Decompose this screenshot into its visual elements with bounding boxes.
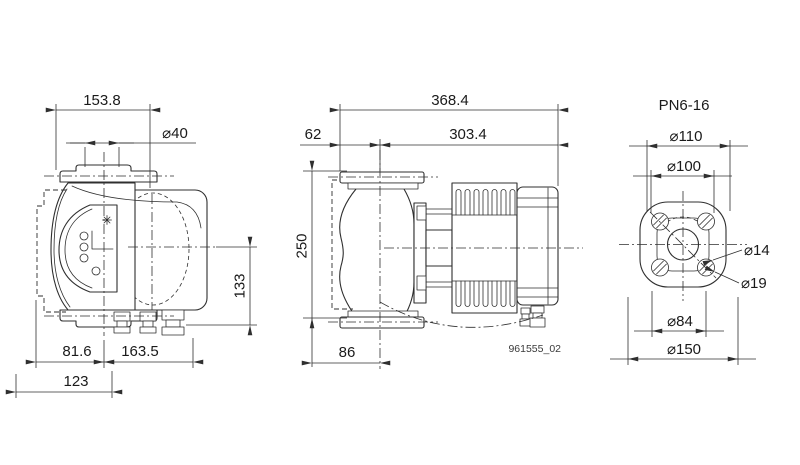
bottom-flange-lip	[348, 311, 418, 317]
dim-label: 368.4	[431, 92, 469, 109]
side-view: 368.4 62 303.4 250 86 961555_02	[294, 92, 584, 369]
dim-flange-width: 86	[312, 344, 380, 363]
dim-label: ⌀150	[667, 341, 701, 358]
dim-body-length: 303.4	[380, 126, 558, 171]
drawing-reference-number: 961555_02	[508, 343, 561, 355]
dim-label: 86	[339, 344, 356, 361]
top-flange-front	[60, 165, 157, 182]
dim-label: 303.4	[449, 126, 487, 143]
front-view: 153.8 ⌀40 133 81.6 163.5	[16, 92, 257, 398]
clamp-screw	[417, 276, 426, 290]
dim-label: 250	[294, 233, 311, 258]
cable-glands-side	[520, 306, 545, 327]
dim-label: ⌀40	[162, 125, 188, 142]
cable-glands-front	[114, 310, 184, 335]
dim-label: ⌀110	[670, 128, 703, 145]
volute-right-profile	[404, 189, 414, 317]
dim-port-diameter: ⌀40	[66, 125, 196, 143]
dim-label: 62	[305, 126, 322, 143]
top-flange-side	[340, 172, 424, 183]
bottom-flange-side	[340, 317, 424, 328]
dim-label: 163.5	[121, 343, 159, 360]
dim-counterbore: ⌀19	[715, 272, 767, 292]
dim-label: 81.6	[62, 343, 91, 360]
dim-label: ⌀19	[741, 275, 767, 292]
dim-label: 123	[63, 373, 88, 390]
pump-dimensional-drawing: 153.8 ⌀40 133 81.6 163.5	[0, 0, 800, 465]
pressure-rating-label: PN6-16	[659, 97, 710, 114]
control-box-side	[517, 187, 558, 305]
dim-bottom-overall: 123	[16, 371, 112, 398]
dim-label: ⌀84	[667, 313, 693, 330]
top-flange-lip	[348, 183, 418, 189]
dim-raised-face: ⌀84	[634, 291, 724, 337]
technical-drawing-page: 153.8 ⌀40 133 81.6 163.5	[0, 0, 800, 465]
dim-bottom-right: 163.5	[104, 338, 193, 368]
dim-port-to-port: 250	[294, 171, 348, 367]
dim-label: 133	[232, 273, 249, 298]
dim-label: 153.8	[83, 92, 121, 109]
volute-left-profile	[340, 189, 356, 317]
dim-label: ⌀100	[667, 158, 701, 175]
clamp-screw	[417, 206, 426, 220]
flange-view: PN6-16 ⌀110	[610, 97, 770, 365]
dim-label: ⌀14	[744, 242, 770, 259]
